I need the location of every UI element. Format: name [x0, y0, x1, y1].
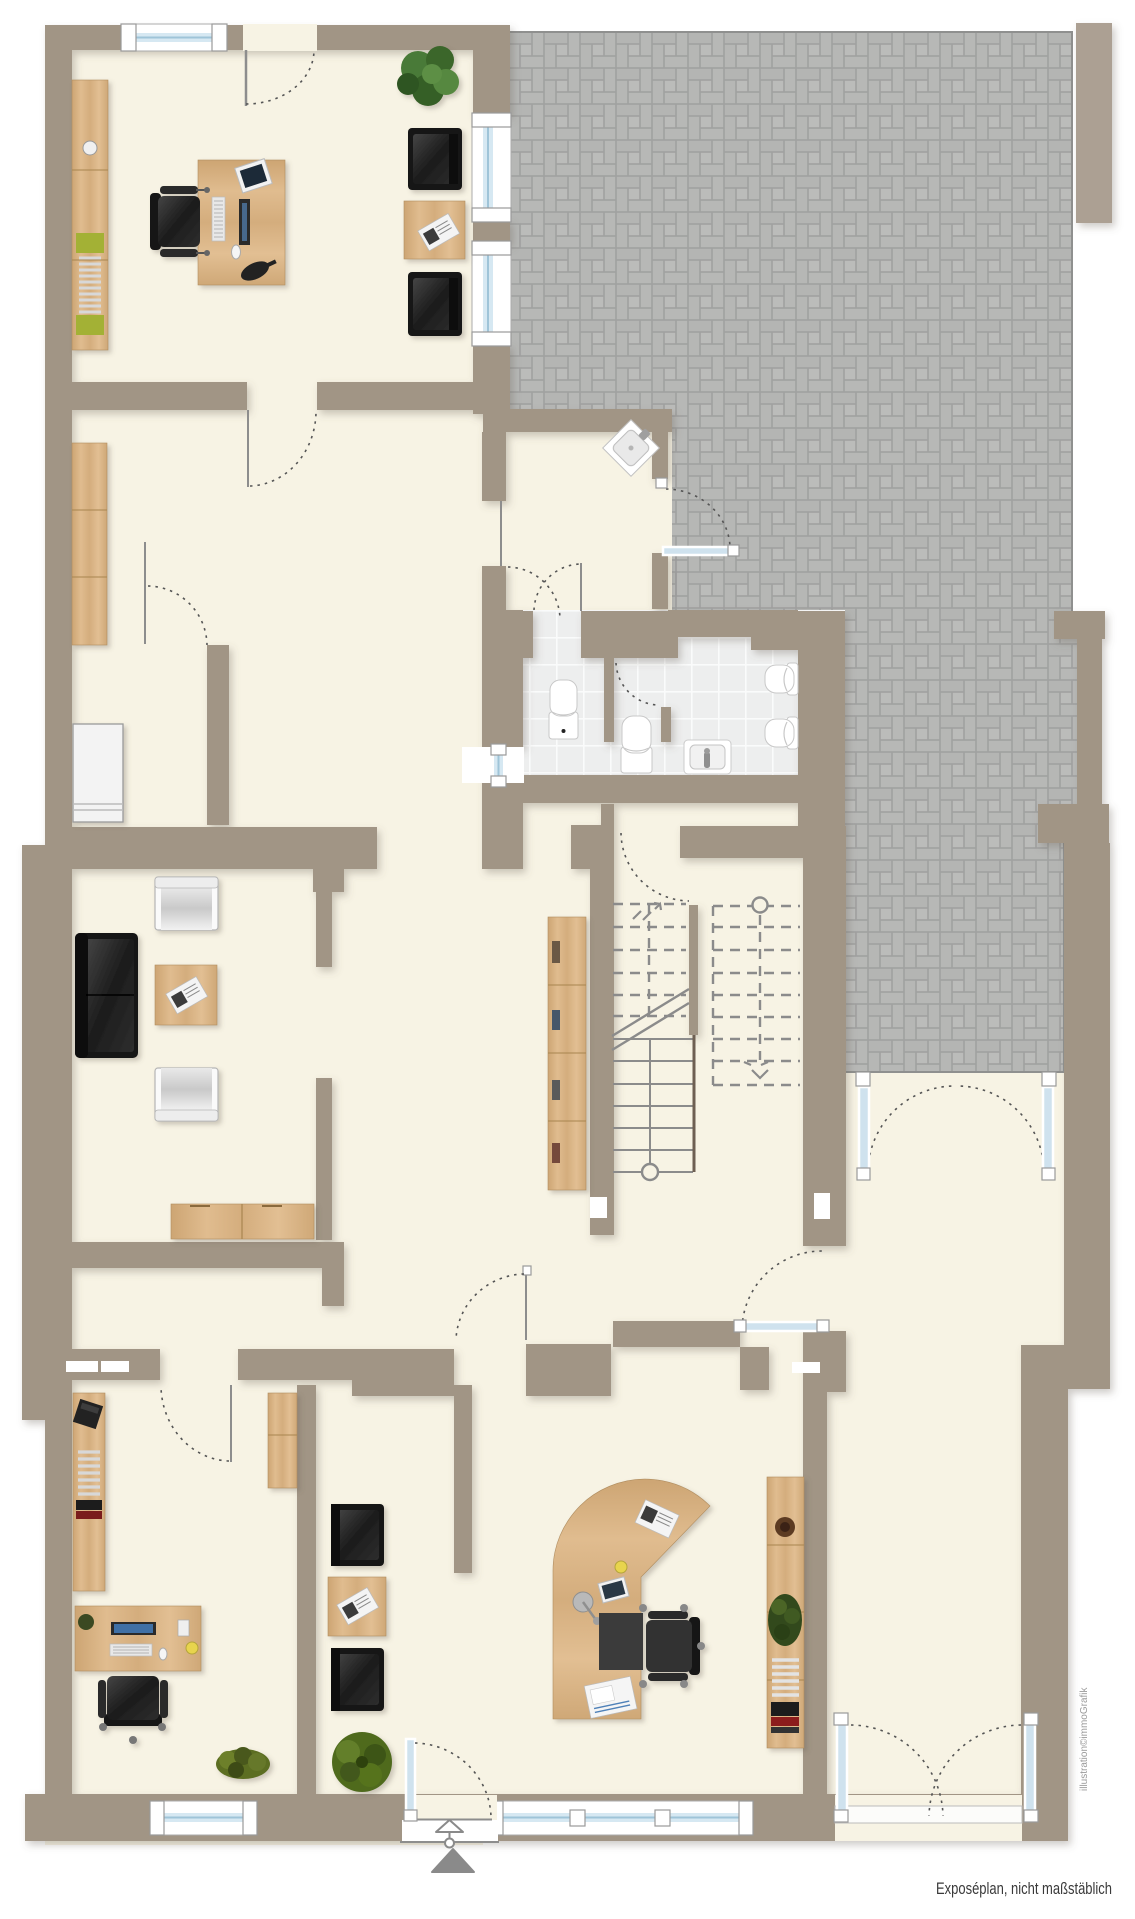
- svg-text:illustration©immoGrafik: illustration©immoGrafik: [1079, 1686, 1090, 1791]
- svg-text:Exposéplan, nicht maßstäblich: Exposéplan, nicht maßstäblich: [936, 1880, 1112, 1898]
